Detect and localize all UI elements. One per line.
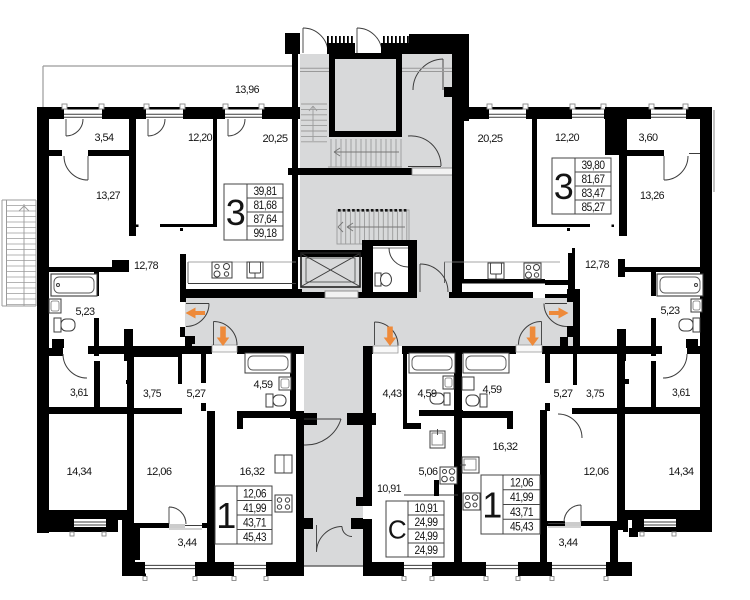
svg-text:39,80: 39,80: [582, 160, 605, 172]
svg-text:16,32: 16,32: [240, 466, 266, 478]
svg-text:12,20: 12,20: [555, 132, 580, 144]
svg-text:1: 1: [216, 495, 235, 536]
svg-text:83,47: 83,47: [582, 188, 605, 200]
svg-text:12,20: 12,20: [188, 132, 213, 144]
svg-text:3: 3: [554, 166, 573, 207]
svg-text:5,27: 5,27: [554, 388, 574, 400]
svg-text:C: C: [388, 514, 406, 544]
svg-text:4,59: 4,59: [483, 384, 503, 396]
svg-text:3,44: 3,44: [178, 537, 198, 549]
svg-text:3,61: 3,61: [70, 387, 89, 399]
svg-text:45,43: 45,43: [243, 532, 266, 544]
svg-text:3,54: 3,54: [95, 132, 115, 144]
svg-text:43,71: 43,71: [510, 507, 533, 519]
svg-text:12,06: 12,06: [243, 488, 266, 500]
svg-text:4,43: 4,43: [383, 388, 403, 400]
svg-text:10,91: 10,91: [377, 483, 402, 495]
svg-text:14,34: 14,34: [67, 466, 93, 478]
svg-text:4,59: 4,59: [254, 379, 274, 391]
svg-text:5,06: 5,06: [419, 466, 439, 478]
svg-text:20,25: 20,25: [478, 133, 504, 145]
svg-text:99,18: 99,18: [254, 228, 277, 240]
svg-text:12,06: 12,06: [510, 477, 533, 489]
svg-text:43,71: 43,71: [243, 517, 266, 529]
svg-text:3,75: 3,75: [143, 388, 162, 400]
svg-text:12,06: 12,06: [147, 466, 173, 478]
svg-text:1: 1: [482, 484, 501, 525]
svg-text:24,99: 24,99: [415, 545, 438, 557]
svg-text:45,43: 45,43: [510, 522, 533, 534]
svg-text:12,78: 12,78: [134, 260, 159, 272]
svg-text:3,61: 3,61: [672, 387, 691, 399]
svg-text:3,44: 3,44: [559, 537, 579, 549]
svg-text:87,64: 87,64: [254, 214, 278, 226]
svg-text:3,60: 3,60: [639, 132, 659, 144]
svg-text:39,81: 39,81: [254, 186, 277, 198]
svg-text:5,27: 5,27: [187, 388, 207, 400]
svg-text:12,78: 12,78: [585, 259, 610, 271]
svg-text:41,99: 41,99: [243, 503, 266, 515]
svg-text:41,99: 41,99: [510, 492, 533, 504]
svg-text:81,67: 81,67: [582, 174, 605, 186]
svg-text:12,06: 12,06: [584, 466, 610, 478]
svg-text:20,25: 20,25: [263, 133, 289, 145]
svg-text:13,26: 13,26: [640, 190, 665, 202]
svg-text:5,23: 5,23: [661, 305, 681, 317]
svg-text:14,34: 14,34: [669, 466, 695, 478]
svg-text:4,59: 4,59: [418, 388, 438, 400]
svg-text:13,96: 13,96: [235, 84, 259, 96]
svg-text:81,68: 81,68: [254, 200, 277, 212]
svg-text:3: 3: [226, 192, 245, 233]
svg-text:24,99: 24,99: [415, 531, 438, 543]
svg-text:24,99: 24,99: [415, 517, 438, 529]
svg-text:85,27: 85,27: [582, 202, 605, 214]
svg-text:10,91: 10,91: [415, 503, 438, 515]
svg-text:13,27: 13,27: [96, 190, 121, 202]
svg-text:16,32: 16,32: [493, 441, 519, 453]
svg-text:5,23: 5,23: [76, 306, 96, 318]
svg-text:3,75: 3,75: [586, 388, 605, 400]
